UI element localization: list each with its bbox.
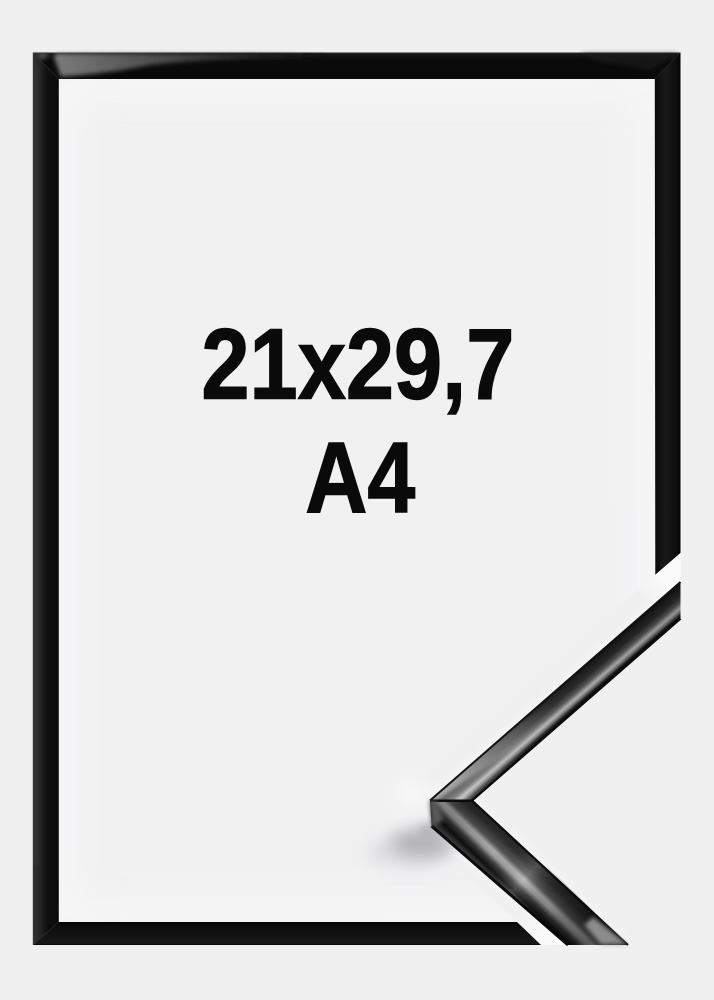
svg-text:A4: A4 [305,422,415,534]
svg-text:21x29,7: 21x29,7 [201,308,514,420]
